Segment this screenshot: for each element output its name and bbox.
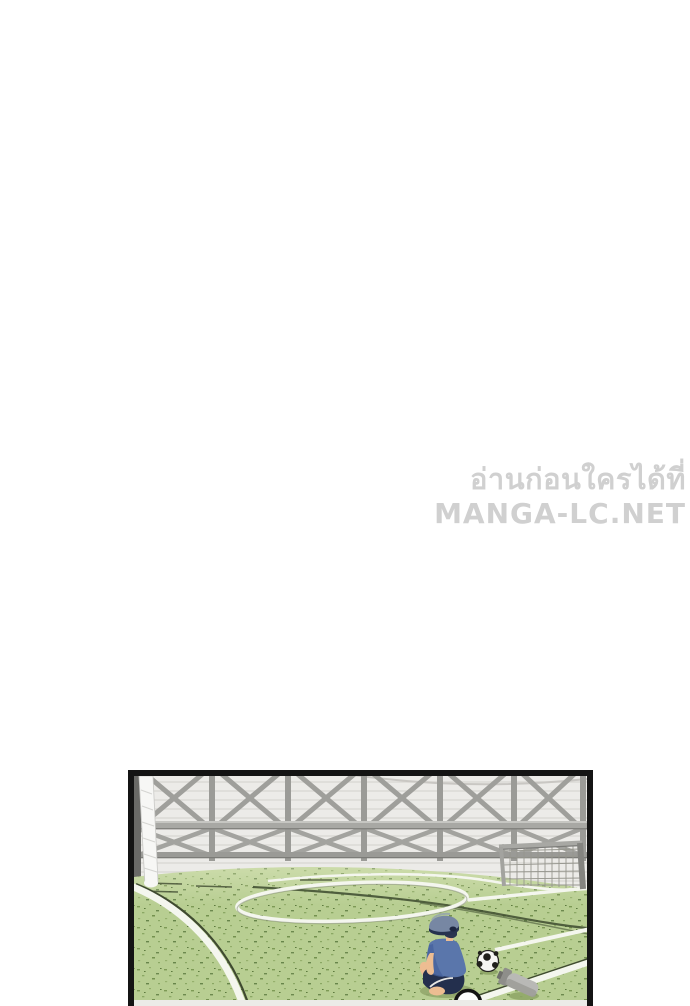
site-watermark: อ่านก่อนใครได้ที่ MANGA-LC.NET <box>434 462 686 530</box>
soccer-field-scene <box>134 776 587 1000</box>
watermark-thai-text: อ่านก่อนใครได้ที่ <box>434 462 686 497</box>
goal-right-post <box>580 843 583 889</box>
manga-panel <box>128 770 593 1006</box>
fence-mid-rail <box>134 821 587 829</box>
boy-foot <box>429 987 445 996</box>
bottom-head-circle <box>456 991 481 1001</box>
cap-back-patch <box>450 927 457 932</box>
watermark-site-name: MANGA-LC.NET <box>434 497 686 531</box>
